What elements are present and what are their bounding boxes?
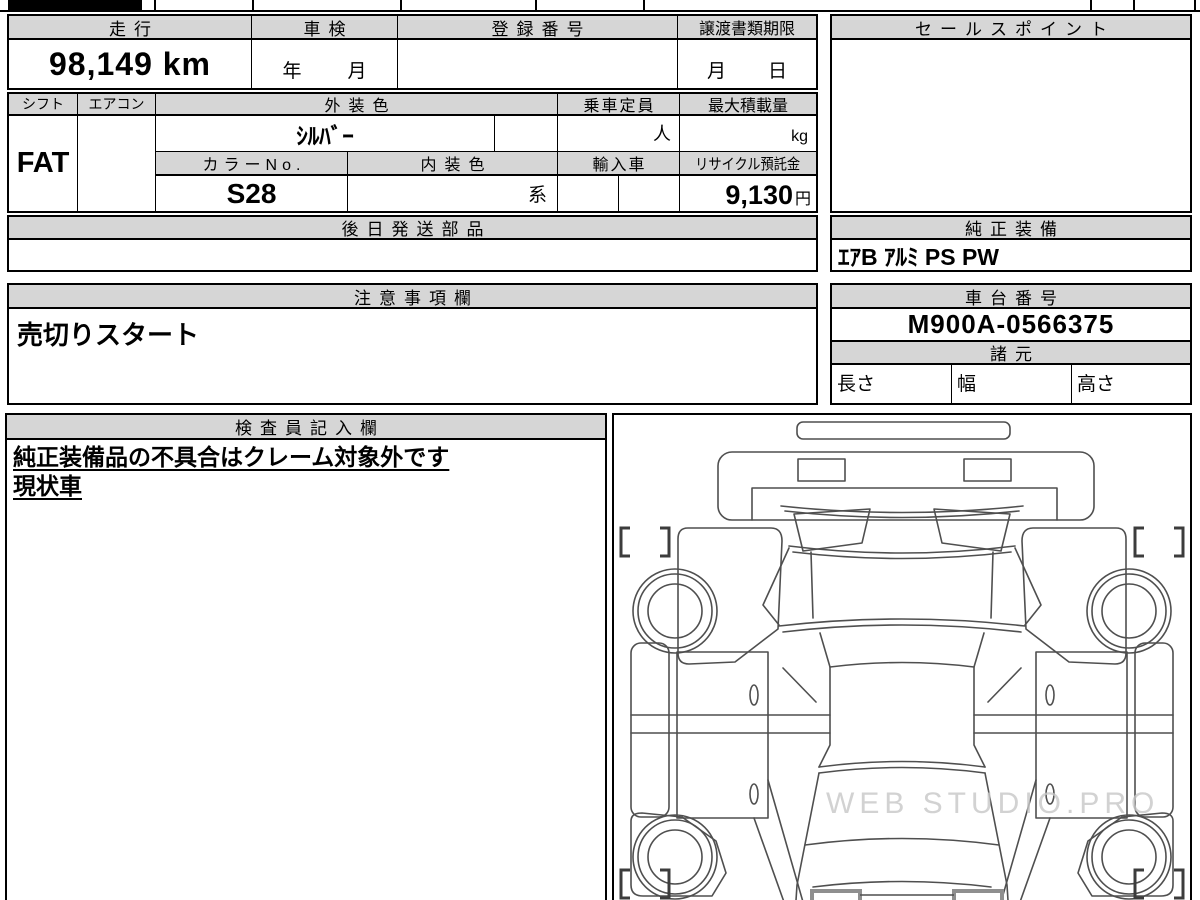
registration-header: 登録番号 (398, 16, 678, 40)
chassis-no-value: M900A-0566375 (832, 309, 1190, 342)
diagram-watermark: WEB STUDIO.PRO (826, 787, 1159, 821)
aircon-header: エアコン (78, 94, 156, 116)
inspection-date-cell: 年 月 (252, 40, 398, 88)
top-strip-tick (1090, 0, 1092, 10)
top-strip-tick (8, 0, 10, 10)
recycle-deposit-value: 9,130 (725, 180, 793, 211)
exterior-color-value: ｼﾙﾊﾞｰ (156, 116, 495, 152)
censored-cell (10, 0, 142, 10)
length-cell: 長さ (832, 365, 952, 403)
exterior-color-header: 外装色 (156, 94, 558, 116)
top-strip-tick (1133, 0, 1135, 10)
mileage-value: 98,149 km (9, 40, 252, 88)
max-load-unit: kg (680, 116, 816, 152)
notes-header: 注意事項欄 (9, 285, 816, 309)
mileage-header: 走行 (9, 16, 252, 40)
transfer-date-cell: 月 日 (678, 40, 816, 88)
top-strip-tick (535, 0, 537, 10)
top-strip-tick (252, 0, 254, 10)
import-car-cell-a (558, 176, 619, 211)
car-diagram-box: WEB STUDIO.PRO (612, 413, 1192, 900)
import-car-cell-b (619, 176, 680, 211)
max-load-header: 最大積載量 (680, 94, 816, 116)
spec-table: シフト エアコン 外装色 乗車定員 最大積載量 FAT ｼﾙﾊﾞｰ 人 kg カ… (7, 92, 818, 213)
recycle-deposit-header: リサイクル預託金 (680, 152, 816, 176)
front-bumper (718, 452, 1094, 520)
sales-point-box: セールスポイント (830, 14, 1192, 213)
top-strip-tick (154, 0, 156, 10)
capacity-header: 乗車定員 (558, 94, 680, 116)
inspector-header: 検査員記入欄 (7, 415, 605, 440)
inspector-line1: 純正装備品の不具合はクレーム対象外です (13, 443, 599, 472)
vehicle-top-table: 走行 車検 登録番号 譲渡書類期限 98,149 km 年 月 月 日 (7, 14, 818, 90)
later-parts-header: 後日発送部品 (9, 217, 816, 240)
transfer-month-label: 月 (707, 56, 726, 83)
shift-header: シフト (9, 94, 78, 116)
notes-box: 注意事項欄 売切りスタート (7, 283, 818, 405)
inspection-year-label: 年 (282, 56, 301, 83)
interior-color-value: 系 (348, 176, 558, 211)
import-car-header: 輸入車 (558, 152, 680, 176)
specs-header: 諸元 (832, 342, 1190, 365)
recycle-deposit-header-text: リサイクル預託金 (696, 153, 801, 174)
shift-value: FAT (9, 116, 78, 211)
auction-sheet: 走行 車検 登録番号 譲渡書類期限 98,149 km 年 月 月 日 セールス… (0, 0, 1200, 900)
tie-down-brackets (621, 528, 1183, 898)
capacity-unit: 人 (558, 116, 680, 152)
transfer-day-label: 日 (768, 56, 787, 83)
color-no-value: S28 (156, 176, 348, 211)
later-parts-box: 後日発送部品 (7, 215, 818, 272)
car-underside-diagram (614, 415, 1190, 900)
top-strip-line (0, 10, 1200, 12)
recycle-deposit-value-cell: 9,130 円 (680, 176, 816, 211)
top-strip-tick (1194, 0, 1196, 10)
genuine-equipment-box: 純正装備 ｴｱB ｱﾙﾐ PS PW (830, 215, 1192, 272)
inspector-box: 検査員記入欄 純正装備品の不具合はクレーム対象外です 現状車 (5, 413, 607, 900)
registration-value-cell (398, 40, 678, 88)
recycle-deposit-unit: 円 (795, 185, 811, 209)
height-cell: 高さ (1072, 365, 1190, 403)
chassis-no-header: 車台番号 (832, 285, 1190, 309)
color-no-header: カラーNo. (156, 152, 348, 176)
notes-value: 売切りスタート (9, 309, 816, 403)
sales-point-header: セールスポイント (832, 16, 1190, 40)
genuine-equipment-value: ｴｱB ｱﾙﾐ PS PW (832, 240, 1190, 270)
width-cell: 幅 (952, 365, 1072, 403)
aircon-value-cell (78, 116, 156, 211)
inspection-month-label: 月 (348, 56, 367, 83)
sales-point-value-cell (832, 40, 1190, 211)
transfer-docs-header: 譲渡書類期限 (678, 16, 816, 40)
genuine-equipment-header: 純正装備 (832, 217, 1190, 240)
inspector-content: 純正装備品の不具合はクレーム対象外です 現状車 (7, 440, 605, 900)
inspection-header: 車検 (252, 16, 398, 40)
inspector-line2: 現状車 (13, 472, 599, 501)
chassis-specs-box: 車台番号 M900A-0566375 諸元 長さ 幅 高さ (830, 283, 1192, 405)
later-parts-value-cell (9, 240, 816, 270)
top-strip-tick (643, 0, 645, 10)
top-strip-tick (400, 0, 402, 10)
exterior-color-extra-cell (495, 116, 558, 152)
interior-color-header: 内装色 (348, 152, 558, 176)
front-top-bar (797, 422, 1010, 439)
